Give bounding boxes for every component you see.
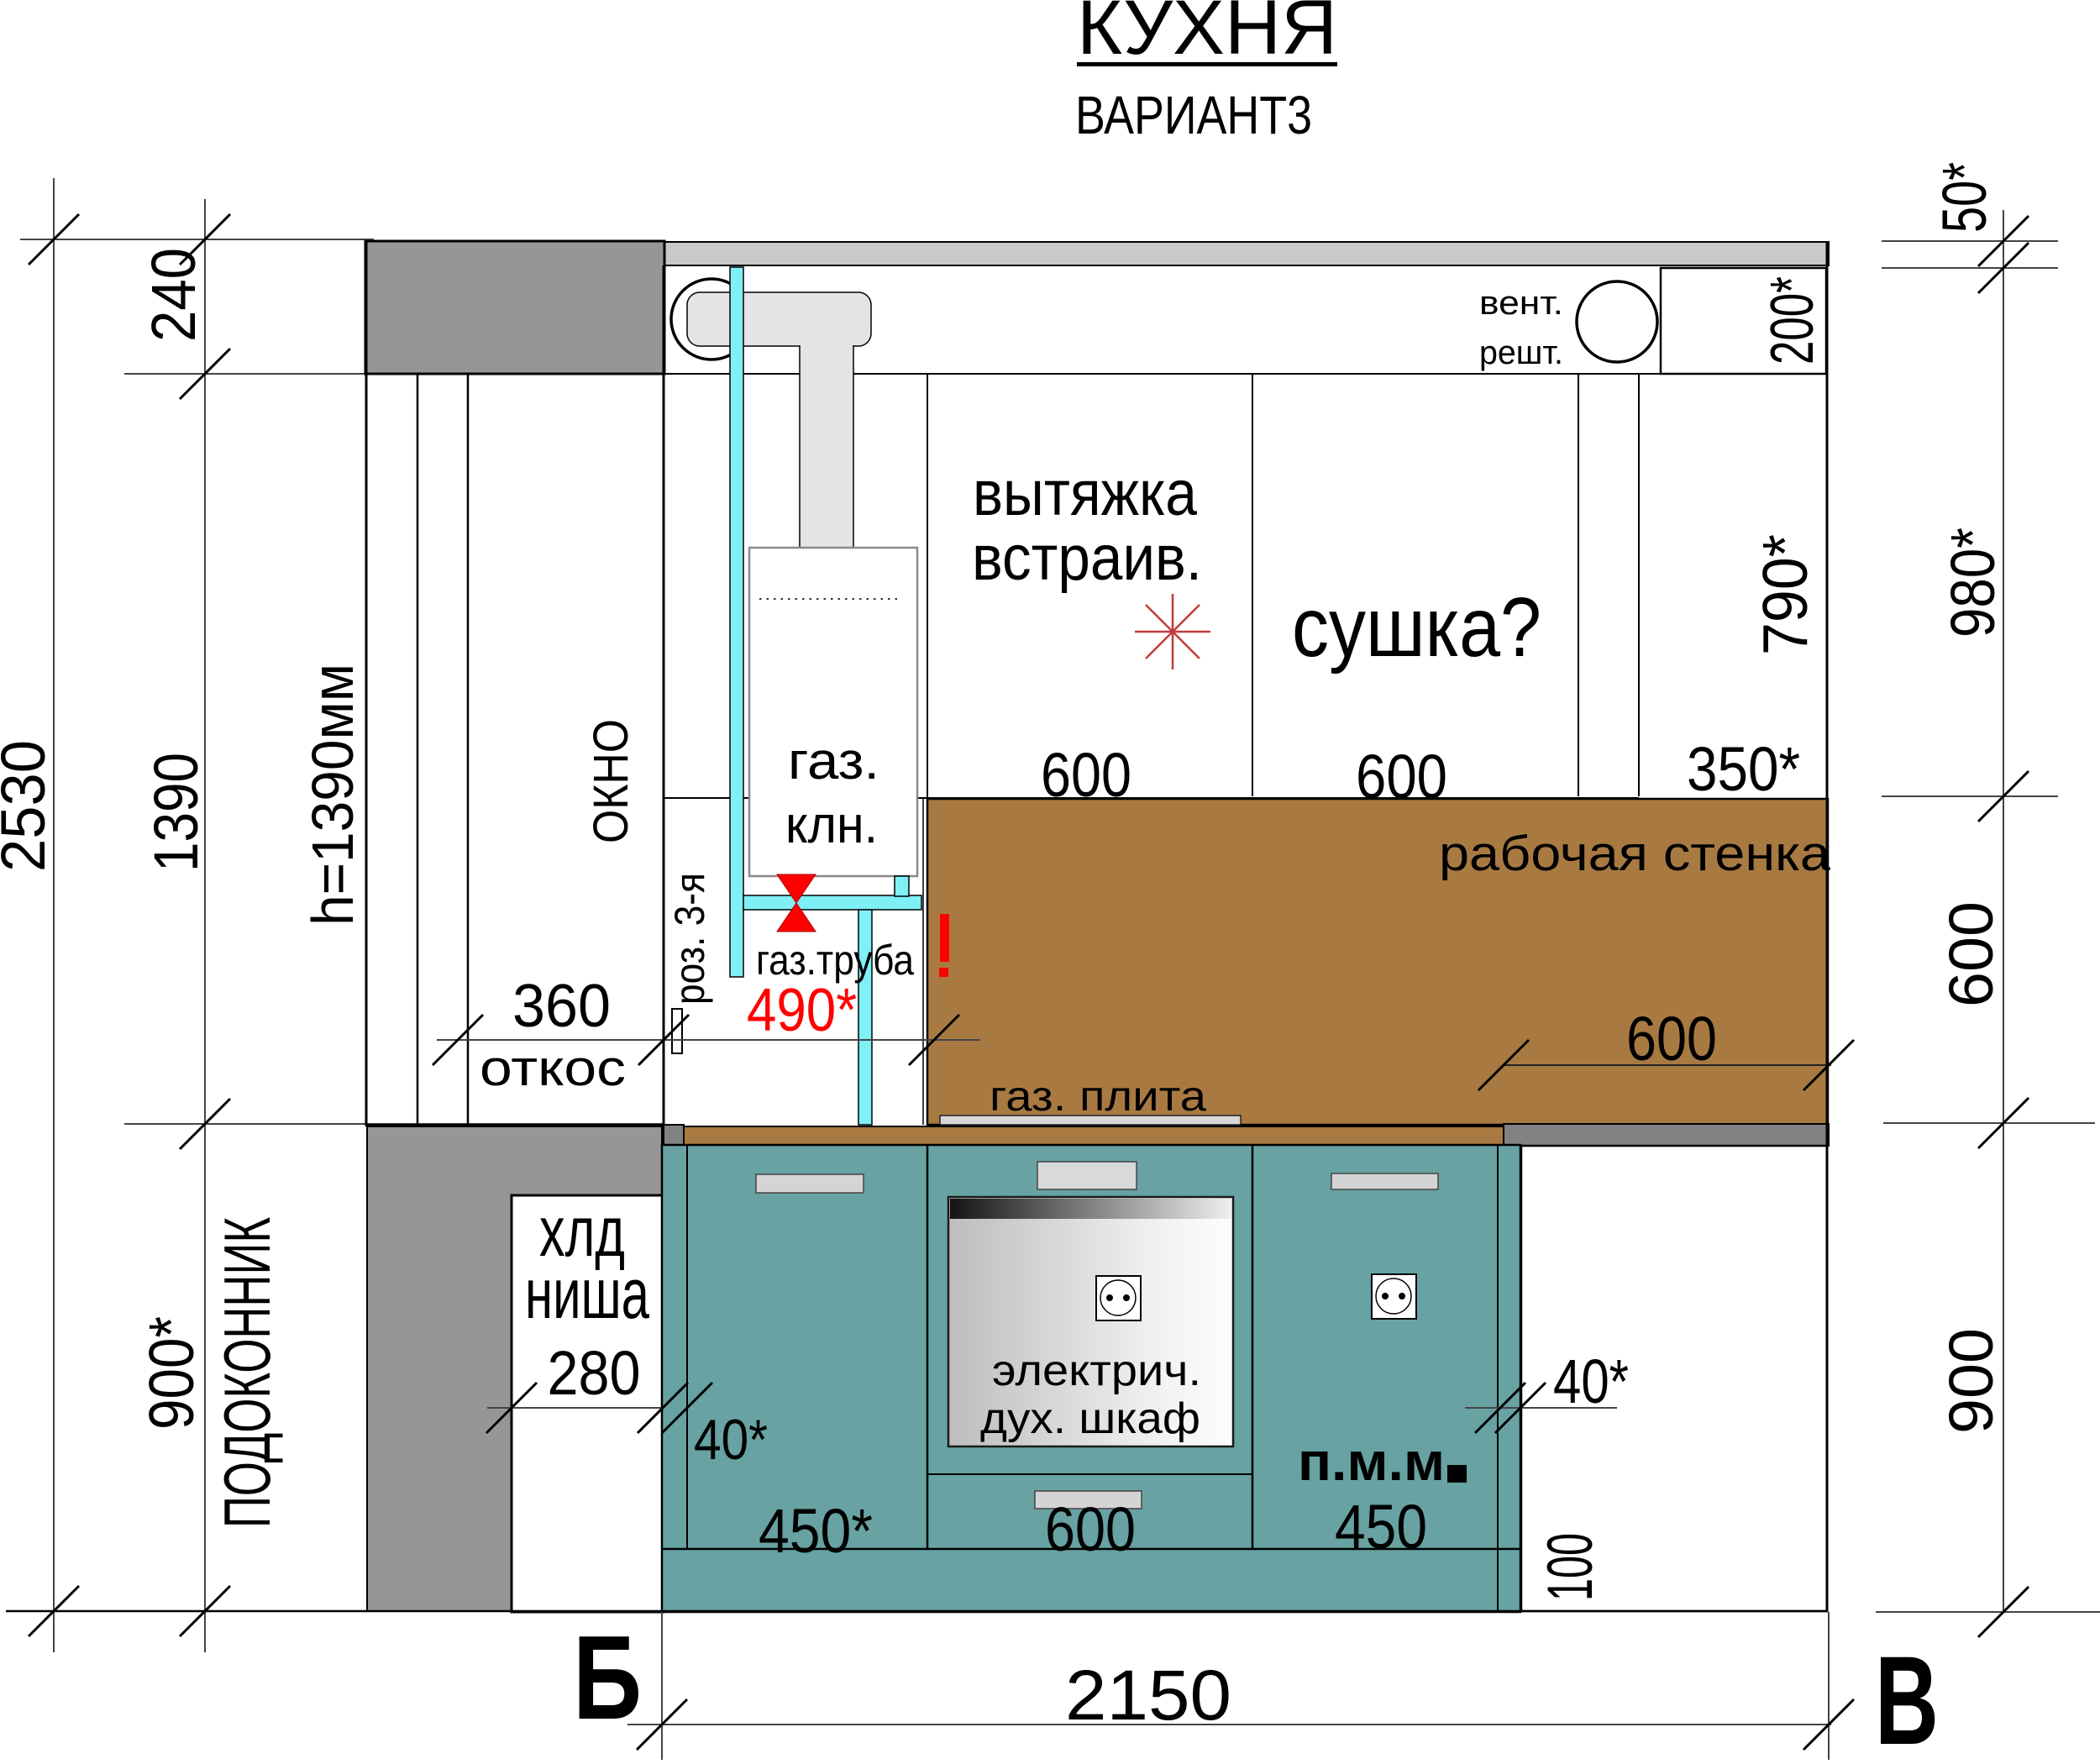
- svg-text:2530: 2530: [0, 740, 58, 872]
- svg-text:1390: 1390: [141, 753, 211, 872]
- svg-text:600: 600: [1936, 901, 2006, 1007]
- svg-text:газ. плита: газ. плита: [990, 1073, 1206, 1120]
- svg-text:600: 600: [1045, 1494, 1136, 1564]
- svg-text:40*: 40*: [1553, 1347, 1629, 1416]
- svg-text:200*: 200*: [1759, 276, 1826, 365]
- svg-text:Б: Б: [573, 1611, 642, 1745]
- svg-text:40*: 40*: [694, 1408, 768, 1472]
- svg-text:900: 900: [1936, 1328, 2006, 1434]
- svg-text:100: 100: [1535, 1533, 1606, 1601]
- svg-text:рабочая стенка: рабочая стенка: [1439, 827, 1831, 881]
- svg-text:В: В: [1875, 1630, 1939, 1760]
- svg-text:900*: 900*: [136, 1316, 207, 1430]
- svg-text:решт.: решт.: [1479, 334, 1563, 371]
- svg-text:450: 450: [1335, 1492, 1427, 1562]
- svg-text:2150: 2150: [1065, 1656, 1231, 1735]
- svg-text:ниша: ниша: [525, 1254, 649, 1333]
- svg-text:50*: 50*: [1929, 162, 1999, 233]
- svg-text:клн.: клн.: [785, 796, 878, 854]
- svg-text:газ.: газ.: [788, 732, 879, 790]
- svg-text:ВАРИАНТ3: ВАРИАНТ3: [1075, 85, 1312, 145]
- svg-text:сушка?: сушка?: [1292, 580, 1541, 675]
- svg-text:350*: 350*: [1687, 734, 1800, 804]
- svg-text:280: 280: [548, 1338, 641, 1408]
- svg-text:ПОДОКОННИК: ПОДОКОННИК: [210, 1217, 284, 1528]
- svg-text:360: 360: [512, 973, 611, 1040]
- svg-text:дух. шкаф: дух. шкаф: [980, 1394, 1200, 1443]
- svg-text:вытяжка: вытяжка: [973, 458, 1198, 529]
- svg-text:h=1390мм: h=1390мм: [300, 664, 365, 926]
- svg-text:встраив.: встраив.: [972, 522, 1202, 594]
- svg-text:вент.: вент.: [1479, 285, 1563, 322]
- svg-text:роз. 3-я: роз. 3-я: [666, 873, 713, 1005]
- svg-text:п.м.м: п.м.м: [1298, 1431, 1445, 1492]
- svg-text:240: 240: [139, 248, 208, 342]
- svg-text:980*: 980*: [1938, 528, 2008, 638]
- svg-text:450*: 450*: [759, 1496, 873, 1566]
- svg-text:490*: 490*: [747, 977, 857, 1044]
- svg-text:ОКНО: ОКНО: [584, 719, 638, 843]
- svg-text:откос: откос: [480, 1040, 626, 1096]
- svg-text:600: 600: [1626, 1004, 1717, 1074]
- svg-text:790*: 790*: [1750, 534, 1820, 655]
- svg-text:КУХНЯ: КУХНЯ: [1077, 0, 1337, 71]
- svg-text:электрич.: электрич.: [992, 1347, 1201, 1395]
